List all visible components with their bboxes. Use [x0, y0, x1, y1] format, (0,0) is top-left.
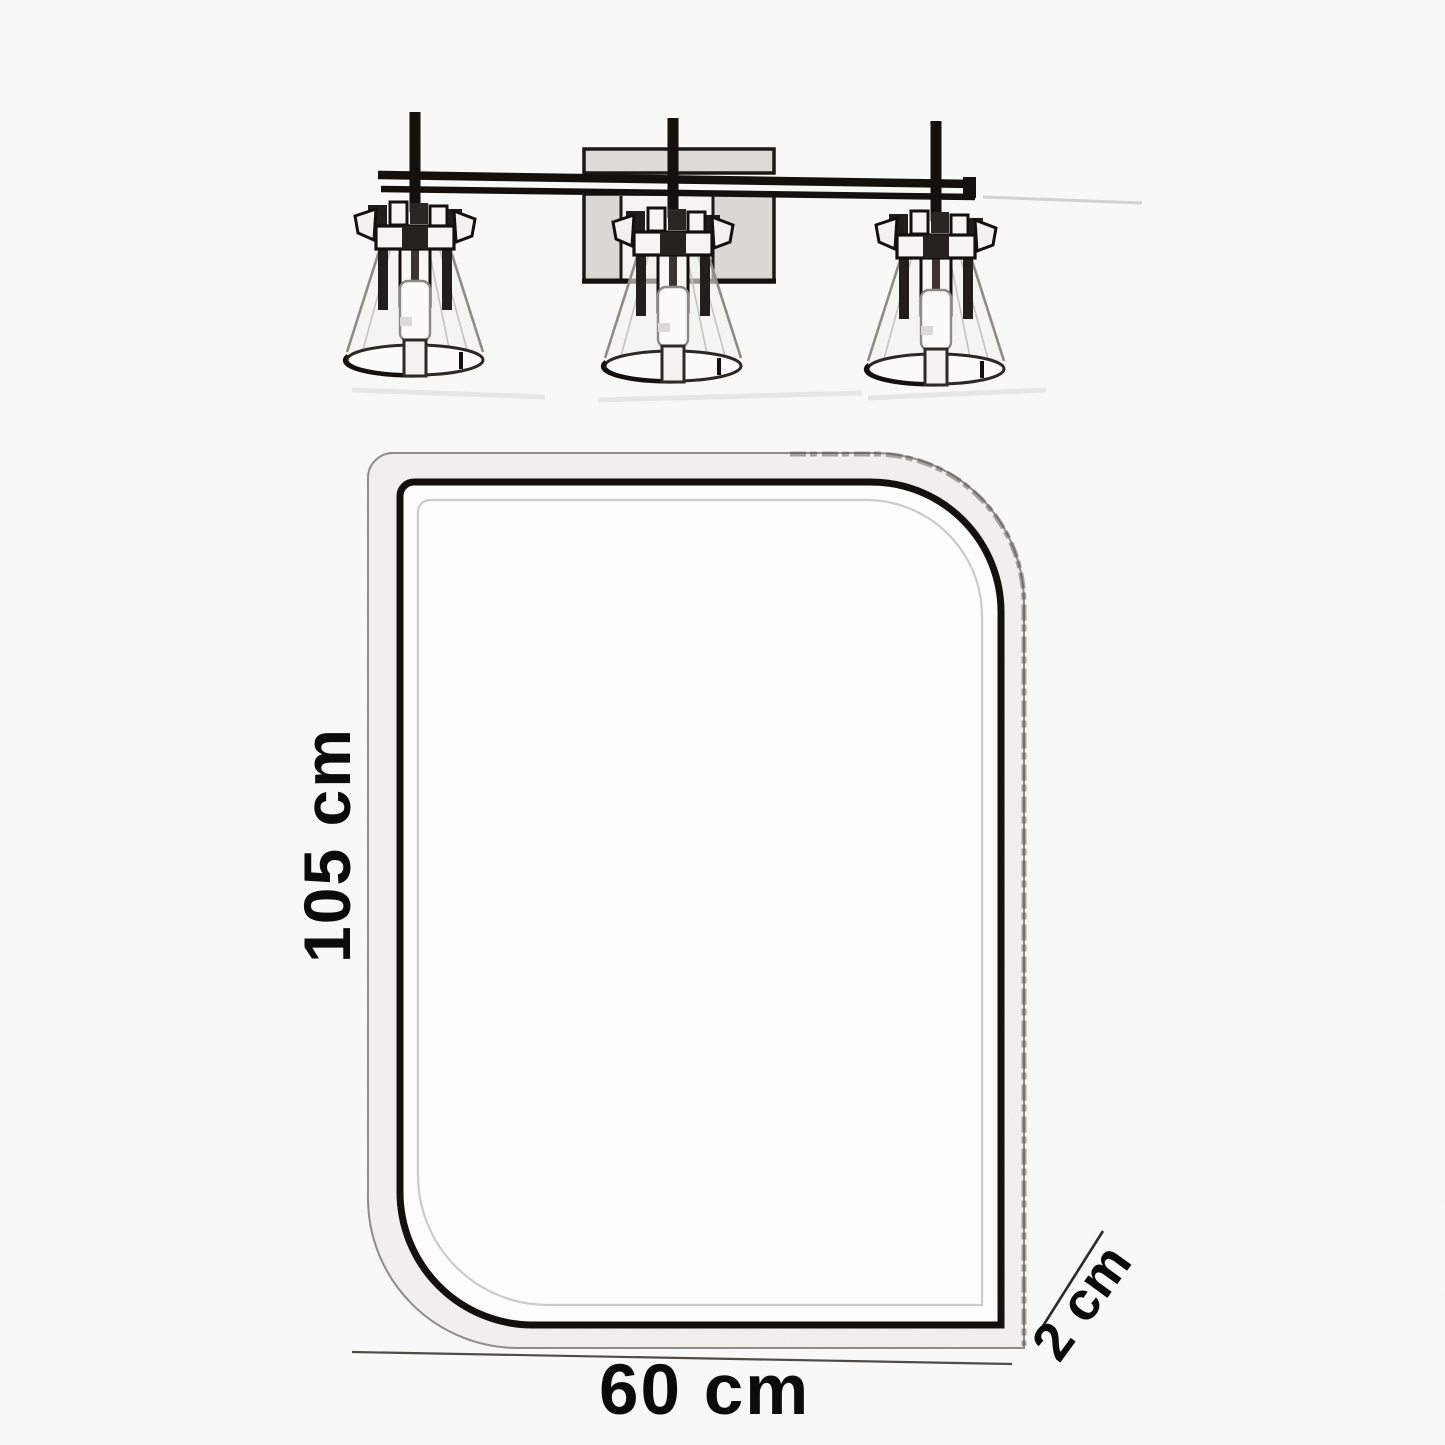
- width-dimension-label: 60 cm: [599, 1350, 810, 1431]
- lamp-stem: [410, 112, 421, 212]
- lamp-stem: [931, 121, 942, 221]
- bulb: [400, 281, 430, 341]
- mirror-inner-edge: [400, 482, 1001, 1325]
- height-dimension-label: 105 cm: [291, 685, 363, 1005]
- bulb: [658, 287, 688, 347]
- lamp-stem: [668, 118, 679, 218]
- sketch-page: 105 cm 60 cm 2 cm: [0, 0, 1445, 1445]
- bulb: [921, 290, 951, 350]
- mirror: [368, 453, 1026, 1350]
- diagram-canvas: [0, 0, 1445, 1445]
- frame-bottom-band: [530, 1326, 1010, 1350]
